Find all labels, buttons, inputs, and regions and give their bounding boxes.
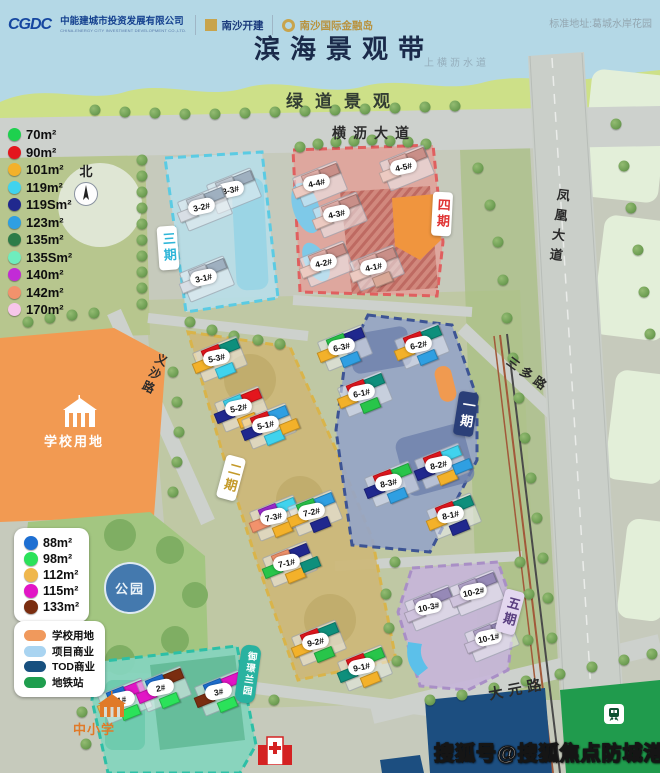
compass-needle-icon [76, 183, 96, 203]
phase-4-label: 四期 [431, 191, 454, 236]
legend-label: 119m² [26, 180, 63, 195]
company1-name: 中能建城市投资发展有限公司 [60, 17, 186, 27]
company1-subtitle: CHINA-ENERGY CITY INVESTMENT DEVELOPMENT… [60, 28, 186, 33]
legend-swatch [8, 286, 21, 299]
legend-label: 115m² [43, 584, 78, 598]
greenway-label: 绿道景观 [286, 87, 402, 112]
nansha-kaijian-logo [205, 19, 217, 31]
legend-swatch [8, 198, 21, 211]
legend-item: 140m² [8, 266, 72, 284]
legend-swatch [8, 303, 21, 316]
road-label-hengli: 横沥大道 [332, 123, 416, 143]
legend-label: 90m² [26, 145, 56, 160]
legend-item: 88m² [24, 535, 79, 551]
legend-existing-units: 88m²98m²112m²115m²133m² [14, 528, 89, 622]
legend-item: 115m² [24, 583, 79, 599]
legend-label: 101m² [26, 162, 64, 177]
legend-label: 88m² [43, 536, 72, 550]
legend-label: 142m² [26, 285, 64, 300]
standard-address: 标准地址:葛城水岸花园 [549, 15, 652, 30]
legend-swatch [24, 600, 38, 614]
legend-item: 地铁站 [24, 675, 95, 691]
legend-item: 98m² [24, 551, 79, 567]
legend-swatch [24, 646, 46, 657]
hospital-icon [256, 731, 294, 770]
legend-label: 项目商业 [52, 644, 94, 659]
legend-item: 112m² [24, 567, 79, 583]
legend-label: 133m² [43, 600, 79, 614]
legend-swatch [8, 163, 21, 176]
legend-item: 135m² [8, 231, 72, 249]
legend-swatch [24, 568, 38, 582]
primary-school-label: 中小学 [73, 719, 115, 738]
train-icon [604, 704, 624, 724]
legend-swatch [8, 216, 21, 229]
legend-item: 142m² [8, 284, 72, 302]
legend-item: 项目商业 [24, 644, 95, 660]
legend-unit-types: 70m²90m²101m²119m²119Sm²123m²135m²135Sm²… [8, 126, 72, 319]
legend-label: 140m² [26, 267, 64, 282]
legend-swatch [24, 536, 38, 550]
legend-swatch [8, 233, 21, 246]
watermark: 搜狐号@搜狐焦点防城港站 [434, 737, 660, 766]
legend-item: 170m² [8, 301, 72, 319]
legend-label: TOD商业 [52, 659, 95, 674]
legend-item: 119m² [8, 179, 72, 197]
legend-swatch [8, 268, 21, 281]
legend-label: 地铁站 [52, 675, 84, 690]
legend-item: 123m² [8, 214, 72, 232]
legend-item: TOD商业 [24, 659, 95, 675]
legend-item: 133m² [24, 599, 79, 615]
park-label: 公园 [115, 579, 145, 598]
legend-item: 135Sm² [8, 249, 72, 267]
legend-item: 101m² [8, 161, 72, 179]
waterway-label: 上横沥水道 [424, 54, 489, 69]
compass: 北 [64, 161, 108, 206]
legend-swatch [8, 251, 21, 264]
legend-swatch [8, 181, 21, 194]
compass-north-label: 北 [64, 161, 108, 180]
school-building-icon [60, 395, 100, 434]
legend-label: 98m² [43, 552, 72, 566]
legend-swatch [24, 552, 38, 566]
legend-item: 90m² [8, 144, 72, 162]
phase-3-label: 三期 [156, 225, 179, 270]
legend-swatch [24, 584, 38, 598]
legend-swatch [8, 146, 21, 159]
page-title: 滨海景观带 [254, 29, 434, 66]
legend-label: 112m² [43, 568, 78, 582]
legend-swatch [24, 677, 46, 688]
legend-label: 135m² [26, 232, 64, 247]
legend-item: 学校用地 [24, 628, 95, 644]
school-site-label: 学校用地 [44, 431, 104, 450]
legend-item: 119Sm² [8, 196, 72, 214]
divider [195, 15, 196, 35]
cgdc-logo: CGDC [8, 16, 51, 34]
legend-label: 学校用地 [52, 628, 94, 643]
legend-item: 70m² [8, 126, 72, 144]
legend-swatch [24, 661, 46, 672]
legend-swatch [24, 630, 46, 641]
legend-label: 135Sm² [26, 250, 72, 265]
legend-label: 123m² [26, 215, 64, 230]
legend-swatch [8, 128, 21, 141]
legend-label: 170m² [26, 302, 64, 317]
legend-label: 70m² [26, 127, 56, 142]
site-plan-map: 3-3#3-2#3-1#4-5#4-4#4-3#4-2#4-1#5-3#5-2#… [0, 0, 660, 773]
legend-land-use: 学校用地项目商业TOD商业地铁站 [14, 621, 105, 697]
compass-dial [74, 182, 98, 206]
